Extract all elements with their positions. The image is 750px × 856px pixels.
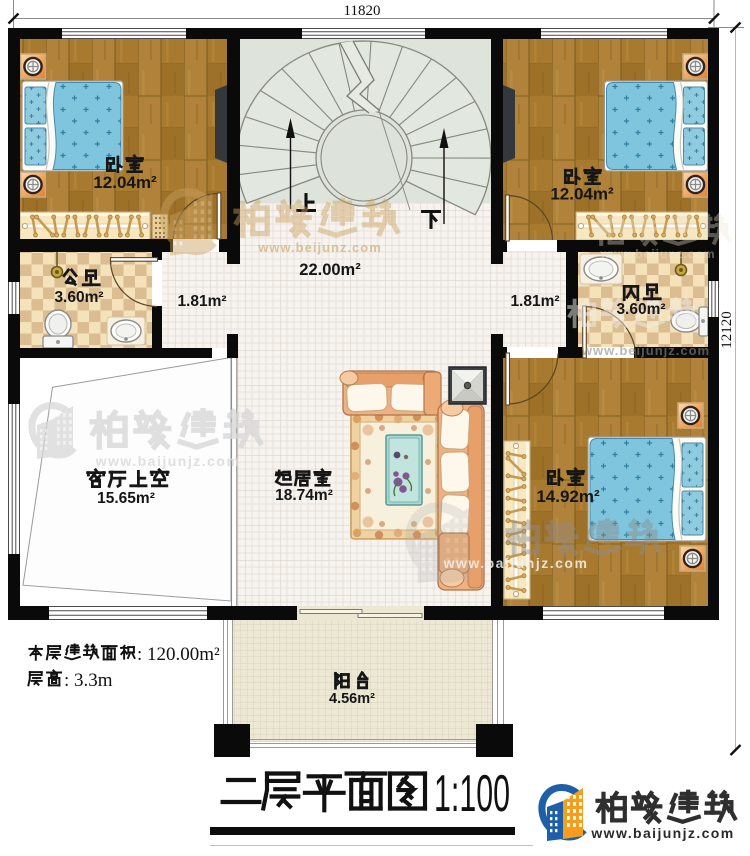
svg-text:15.65m²: 15.65m² [97,490,155,507]
svg-text:www.beijunz.com: www.beijunz.com [599,247,715,261]
svg-text:www.beijunjz.com: www.beijunjz.com [581,343,710,358]
svg-text:12.04m²: 12.04m² [550,185,614,204]
svg-text:12120: 12120 [719,311,735,349]
svg-text:22.00m²: 22.00m² [299,261,361,279]
svg-text:1.81m²: 1.81m² [177,293,226,310]
svg-text:4.56m²: 4.56m² [329,691,375,707]
svg-text:www.baijunjz.com: www.baijunjz.com [95,453,241,469]
svg-text:www.beijunz.com: www.beijunz.com [257,240,382,255]
svg-text:: 3.3m: : 3.3m [64,670,113,691]
svg-text:www.baijunjz.com: www.baijunjz.com [443,555,589,571]
svg-text:11820: 11820 [344,3,381,19]
svg-text:: 120.00m²: : 120.00m² [137,644,220,665]
svg-text:www.baijunjz.com: www.baijunjz.com [590,825,734,841]
svg-text:3.60m²: 3.60m² [54,289,103,306]
svg-text:14.92m²: 14.92m² [536,487,600,506]
svg-text:12.04m²: 12.04m² [93,173,157,192]
svg-text:1:100: 1:100 [434,765,510,823]
svg-text:1.81m²: 1.81m² [510,293,559,310]
svg-text:18.74m²: 18.74m² [275,487,333,504]
svg-text:3.60m²: 3.60m² [616,301,665,318]
